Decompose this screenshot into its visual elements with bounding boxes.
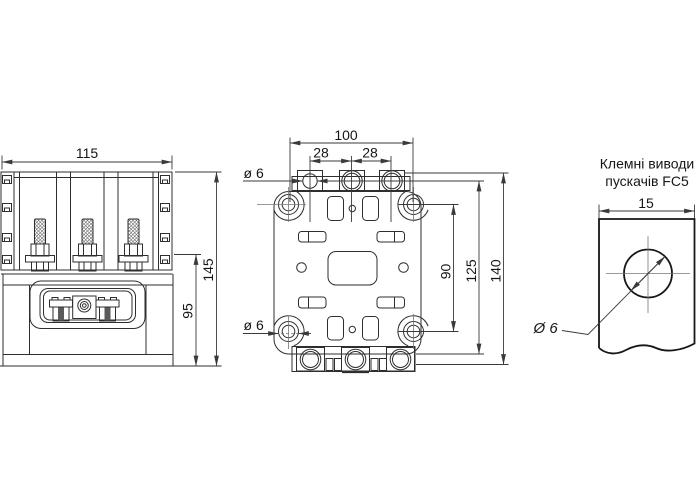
- coil-center-screw-inner: [80, 302, 88, 310]
- mounting-view-centerlines: [257, 187, 414, 349]
- plate-small-hole: [349, 326, 355, 332]
- front-lower-height-dim-label: 95: [180, 303, 196, 319]
- left-rail-clips: [3, 176, 12, 264]
- terminal-stud-2: [73, 219, 102, 271]
- plate-slot: [328, 197, 344, 221]
- mount-hole-dim-top-label: ø 6: [244, 165, 264, 181]
- plate-slot: [363, 317, 379, 341]
- plate-slot: [328, 317, 344, 341]
- mount-width-dim-label: 100: [334, 127, 358, 143]
- terminal-view-dimensions: [562, 205, 695, 335]
- plate-side-hole: [297, 263, 307, 273]
- mounting-view-dimensions: [243, 138, 509, 365]
- terminal-hole-centerlines: [606, 236, 690, 313]
- terminal-hole-dim-label: Ø 6: [533, 320, 559, 337]
- terminal-view-title-line2: пускачів FC5: [605, 173, 689, 189]
- mount-pitch-left-label: 28: [313, 145, 329, 161]
- terminal-tab: [326, 359, 333, 371]
- plate-slot: [299, 297, 327, 308]
- coil-clamp-left: [50, 298, 73, 322]
- mount-overall-height-label: 140: [488, 259, 504, 283]
- coil-clamp-right: [96, 298, 119, 322]
- terminal-tab: [371, 359, 378, 371]
- contactor-dimension-drawing: 115 145 95 100 28 28 ø 6 ø 6 90 125 140 …: [0, 0, 700, 500]
- pole-divider: [104, 172, 118, 270]
- plate-slot: [299, 232, 327, 243]
- terminal-tab: [335, 359, 342, 371]
- terminal-width-dim-label: 15: [638, 195, 654, 211]
- coil-center-screw-dot: [83, 304, 87, 308]
- bottom-terminal-hole: [300, 349, 321, 370]
- front-width-dim-label: 115: [76, 145, 99, 161]
- mount-hole-dim-bottom-label: ø 6: [244, 317, 264, 333]
- front-view-dimensions: [2, 156, 222, 367]
- plate-small-hole: [349, 205, 355, 211]
- pole-divider: [57, 172, 71, 270]
- mount-hole-span-height-label: 90: [438, 264, 454, 280]
- front-view: [0, 172, 222, 366]
- plate-slot: [363, 197, 379, 221]
- mount-pitch-right-label: 28: [362, 145, 378, 161]
- coil-panel-middle: [40, 289, 136, 323]
- plate-slot: [377, 232, 405, 243]
- plate-center-opening: [328, 252, 377, 286]
- bottom-terminal-hole: [390, 349, 411, 370]
- mounting-view: [274, 171, 428, 373]
- plate-side-hole: [399, 263, 409, 273]
- terminal-stud-3: [119, 219, 148, 271]
- coil-center-screw: [78, 299, 91, 312]
- technical-drawing-page: 115 145 95 100 28 28 ø 6 ø 6 90 125 140 …: [0, 0, 700, 500]
- terminal-plate-outline: [599, 219, 695, 353]
- diameter-leader-line: [562, 257, 665, 335]
- base-plate: [274, 192, 421, 355]
- right-rail-clips: [161, 176, 170, 264]
- terminal-tab: [380, 359, 387, 371]
- bottom-terminal-hole: [345, 349, 366, 370]
- terminal-view: [562, 205, 695, 354]
- front-height-dim-label: 145: [200, 258, 216, 282]
- terminal-stud-1: [26, 219, 55, 271]
- mount-body-height-label: 125: [463, 259, 479, 283]
- plate-slot: [377, 297, 405, 308]
- terminal-view-title-line1: Клемні виводи: [600, 156, 694, 172]
